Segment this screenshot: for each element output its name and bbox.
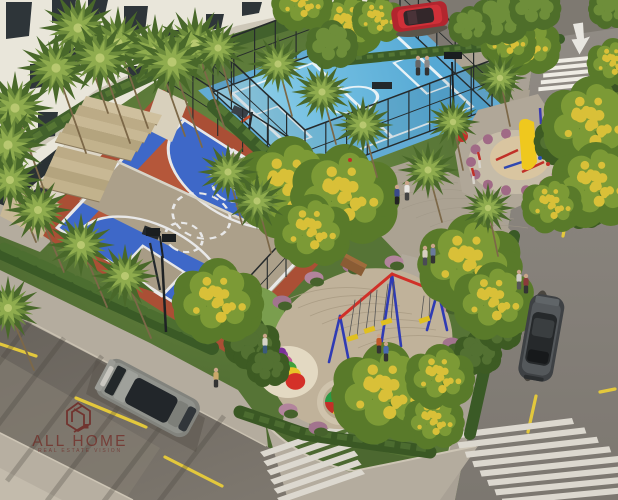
svg-text:REAL ESTATE VISION: REAL ESTATE VISION [38,448,122,454]
